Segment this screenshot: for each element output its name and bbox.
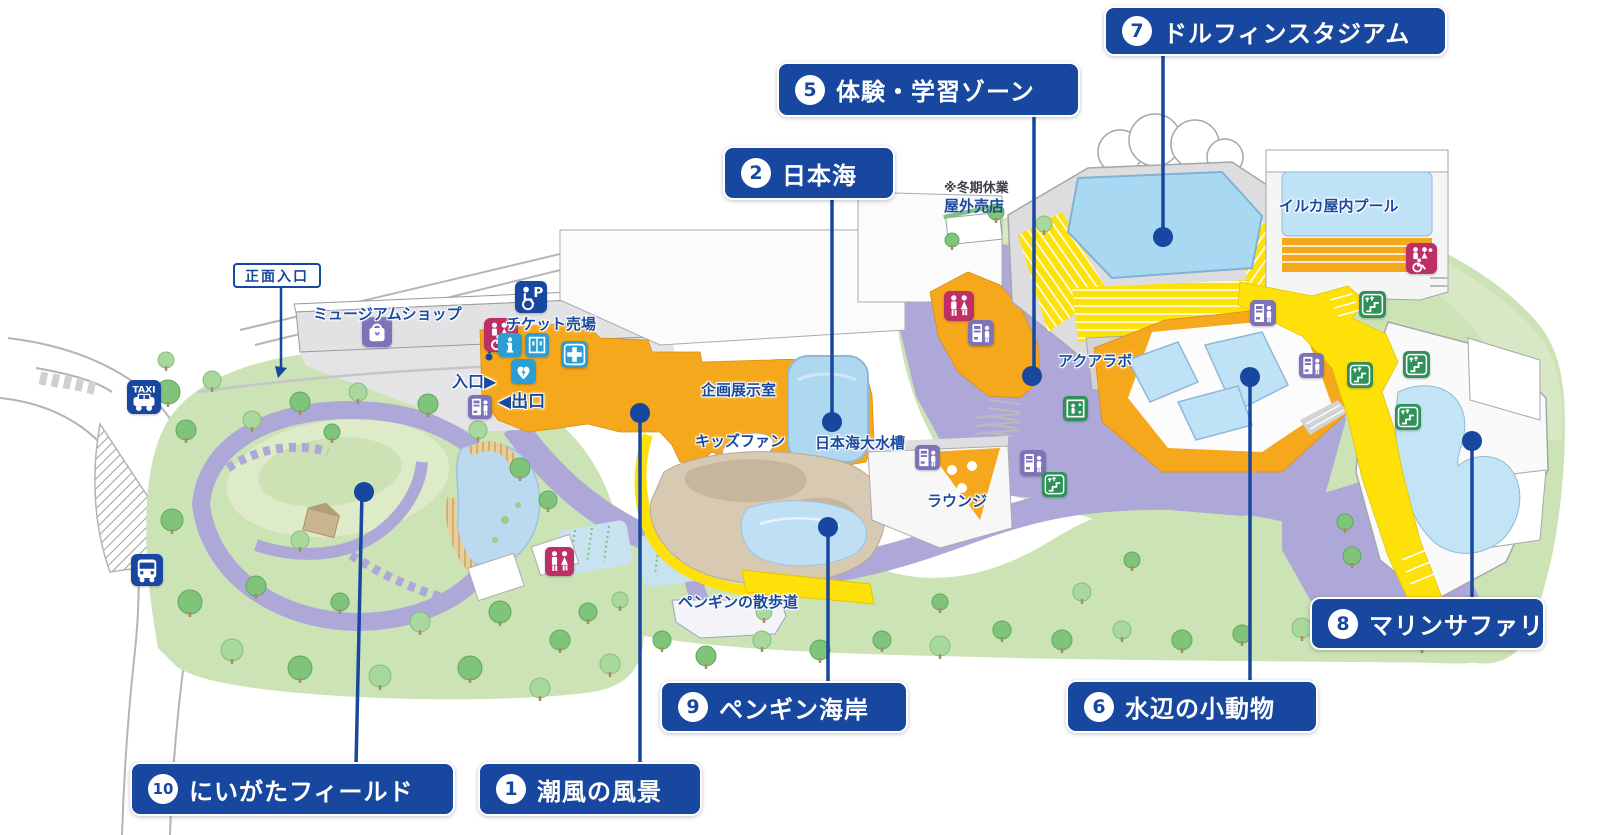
winter-closure-line1: ※冬期休業 (944, 181, 1009, 197)
zone-name: 日本海 (782, 156, 857, 191)
tree-trunk (1043, 230, 1045, 235)
map-label-penguin-walk: ペンギンの散歩道 (678, 591, 798, 612)
tree (510, 458, 530, 478)
map-label-kids-fun: キッズファン (695, 430, 785, 451)
tree-trunk (477, 437, 479, 442)
zone-number-badge: 7 (1122, 16, 1152, 46)
tree-trunk (761, 647, 763, 652)
tree (1073, 583, 1091, 601)
zone-label-10: 10にいがたフィールド (130, 762, 455, 816)
tree (158, 352, 174, 368)
tree (221, 639, 243, 661)
zone-number-badge: 5 (795, 75, 825, 105)
tree-trunk (419, 630, 421, 635)
tree-trunk (995, 218, 997, 223)
tree (161, 509, 183, 531)
tree-trunk (1131, 566, 1133, 571)
tree-trunk (189, 612, 191, 617)
facility-map: 正面入口 ※冬期休業 屋外売店 TAXIP ミュージアムショップチケット売場入口… (0, 0, 1600, 835)
tree-trunk (763, 618, 765, 623)
zone-number-badge: 8 (1328, 609, 1358, 639)
tree (753, 631, 771, 649)
tree-trunk (1301, 636, 1303, 641)
tree (696, 646, 716, 666)
tree-trunk (939, 608, 941, 613)
tree (1036, 216, 1052, 232)
vending-machine-icon (1250, 300, 1276, 326)
winter-closure-note: ※冬期休業 屋外売店 (944, 181, 1009, 215)
zone-number-badge: 2 (741, 158, 771, 188)
zone-8-location-dot (1462, 431, 1482, 451)
tree-trunk (619, 606, 621, 611)
escalator-icon (1395, 404, 1421, 430)
coin-locker-icon (525, 333, 549, 357)
main-entrance-sign: 正面入口 (233, 263, 321, 288)
zone-number-badge: 10 (148, 774, 178, 804)
zone-7-location-dot (1153, 227, 1173, 247)
tree (1343, 547, 1361, 565)
escalator-icon (1403, 351, 1430, 378)
zone-number-badge: 1 (496, 774, 526, 804)
elevator-icon (1063, 396, 1088, 421)
tree (469, 421, 487, 439)
accessible-parking-icon: P (515, 281, 547, 313)
zone-1-location-dot (630, 403, 650, 423)
restroom-icon (944, 291, 974, 321)
zone-label-7: 7ドルフィンスタジアム (1104, 6, 1447, 56)
zone-label-8: 8マリンサファリ (1310, 597, 1545, 650)
tree-trunk (427, 412, 429, 417)
zone-name: 潮風の風景 (537, 772, 662, 807)
tree (945, 233, 959, 247)
vending-machine-icon (468, 395, 492, 419)
tree (331, 593, 349, 611)
tree (1292, 618, 1312, 638)
zone-label-5: 5体験・学習ゾーン (777, 62, 1080, 117)
tree (612, 592, 628, 608)
tree-trunk (1344, 528, 1346, 533)
tree-trunk (1351, 563, 1353, 568)
tree (324, 424, 340, 440)
tree-trunk (1001, 637, 1003, 642)
tree-trunk (547, 507, 549, 512)
tree (1124, 552, 1140, 568)
tree-trunk (339, 609, 341, 614)
tree-trunk (379, 685, 381, 690)
first-aid-icon (561, 341, 588, 368)
zone-10-location-dot (354, 482, 374, 502)
tree-trunk (587, 619, 589, 624)
map-label-japan-sea-tank: 日本海大水槽 (815, 432, 905, 453)
tree (539, 491, 557, 509)
map-label-dolphin-indoor-pool: イルカ屋内プール (1279, 195, 1399, 216)
tree (1337, 514, 1353, 530)
zone-name: ペンギン海岸 (719, 690, 869, 725)
tree (458, 656, 482, 680)
map-label-museum-shop: ミュージアムショップ (313, 303, 462, 324)
tree (288, 656, 312, 680)
tree-trunk (559, 648, 561, 653)
tree-trunk (939, 654, 941, 659)
tree (579, 603, 597, 621)
tree (418, 394, 438, 414)
tree-trunk (211, 387, 213, 392)
tree-trunk (519, 476, 521, 481)
zone-name: 水辺の小動物 (1125, 689, 1275, 724)
vending-machine-icon (1299, 353, 1324, 378)
vending-machine-icon (915, 445, 940, 470)
tree-trunk (299, 547, 301, 552)
tree (246, 576, 266, 596)
tree-trunk (469, 678, 471, 683)
map-label-aqua-lab: アクアラボ (1058, 350, 1132, 371)
tree-trunk (609, 672, 611, 677)
tree-trunk (299, 410, 301, 415)
tree-trunk (299, 678, 301, 683)
tree-trunk (171, 529, 173, 534)
multipurpose-restroom-icon (1406, 243, 1437, 274)
map-label-entrance-gate: 入口▶ (452, 368, 496, 392)
tree-trunk (1081, 599, 1083, 604)
tree-trunk (1181, 648, 1183, 653)
zone-label-6: 6水辺の小動物 (1066, 680, 1318, 733)
tree-trunk (539, 696, 541, 701)
zone-2-location-dot (822, 412, 842, 432)
tree-trunk (881, 647, 883, 652)
map-label-ticket-office: チケット売場 (506, 313, 596, 334)
escalator-icon (1347, 362, 1373, 388)
tree (349, 383, 367, 401)
tree (291, 531, 309, 549)
zone-number-badge: 9 (678, 692, 708, 722)
tree (930, 636, 950, 656)
tree-trunk (1241, 641, 1243, 646)
escalator-icon (1359, 291, 1386, 318)
zone-label-1: 1潮風の風景 (478, 762, 702, 816)
tree (550, 630, 570, 650)
tree (993, 621, 1011, 639)
outdoor-shop-label: 屋外売店 (944, 197, 1009, 215)
tree (410, 612, 430, 632)
tree (932, 594, 948, 610)
map-label-lounge: ラウンジ (927, 490, 987, 511)
tree (290, 392, 310, 412)
dolphin-indoor-pool-building (1266, 150, 1448, 300)
tree (176, 420, 196, 440)
tree-trunk (819, 658, 821, 663)
tree-trunk (499, 621, 501, 626)
tree (178, 590, 202, 614)
tree (1172, 630, 1192, 650)
tree (243, 411, 261, 429)
tree (873, 631, 891, 649)
tree-trunk (331, 438, 333, 443)
tree-trunk (185, 438, 187, 443)
vending-machine-icon (968, 320, 994, 346)
map-label-exit-gate: ◀出口 (498, 387, 545, 412)
tree (600, 654, 620, 674)
tree (1113, 621, 1131, 639)
zone-5-location-dot (1022, 366, 1042, 386)
bus-icon (131, 554, 163, 586)
tree (653, 631, 671, 649)
tree (369, 665, 391, 687)
zone-9-location-dot (818, 517, 838, 537)
tree-trunk (357, 399, 359, 404)
zone-name: にいがたフィールド (189, 772, 414, 807)
aed-icon (511, 359, 536, 384)
svg-text:P: P (533, 285, 543, 301)
tree-trunk (705, 664, 707, 669)
zone-label-9: 9ペンギン海岸 (660, 681, 908, 733)
tree-trunk (1121, 637, 1123, 642)
tree-trunk (231, 659, 233, 664)
zone-name: マリンサファリ (1369, 606, 1544, 641)
taxi-icon: TAXI (127, 380, 161, 414)
tree-trunk (1061, 648, 1063, 653)
map-label-exhibit-room: 企画展示室 (701, 379, 776, 400)
tree (489, 601, 511, 623)
escalator-icon (1042, 472, 1067, 497)
tree (1052, 630, 1072, 650)
tree (530, 678, 550, 698)
zone-name: 体験・学習ゾーン (836, 72, 1035, 107)
tree (203, 371, 221, 389)
tree-trunk (255, 594, 257, 599)
info-icon (498, 333, 522, 357)
tree-trunk (951, 245, 953, 250)
zone-6-location-dot (1240, 367, 1260, 387)
tree-trunk (167, 402, 169, 407)
tree-trunk (661, 647, 663, 652)
tree-trunk (251, 427, 253, 432)
tree-trunk (165, 366, 167, 371)
restroom-icon (545, 547, 574, 576)
zone-name: ドルフィンスタジアム (1163, 14, 1410, 49)
zone-label-2: 2日本海 (723, 146, 895, 200)
zone-number-badge: 6 (1084, 692, 1114, 722)
